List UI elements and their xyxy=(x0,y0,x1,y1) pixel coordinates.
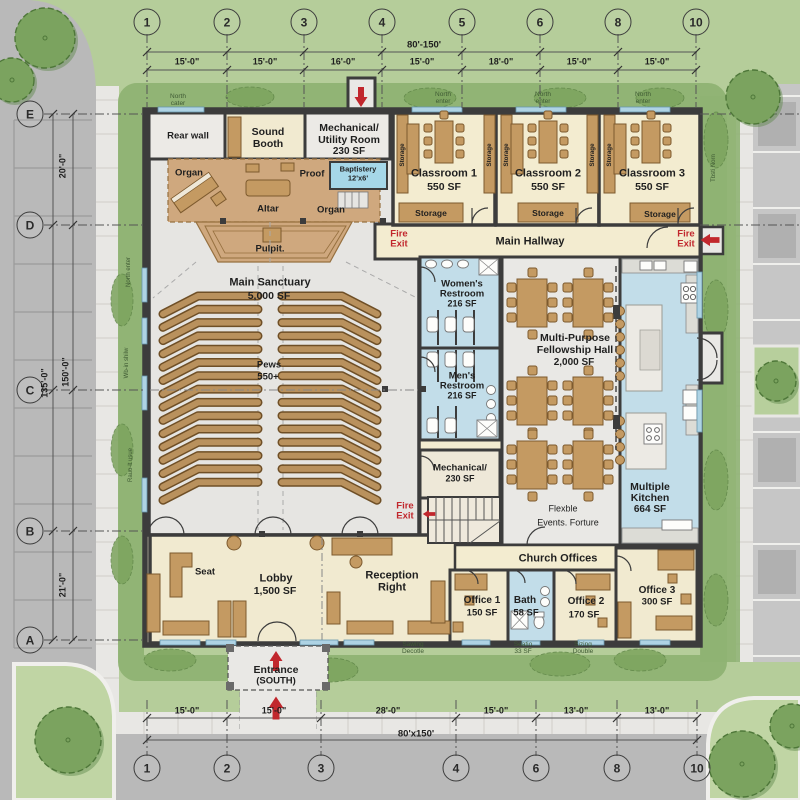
edge-label: North enter xyxy=(126,257,132,287)
storage-label: Storage xyxy=(504,143,510,166)
label-pews: Pews xyxy=(257,360,281,370)
edge-label: Rauo-lt usue xyxy=(128,448,134,482)
label-bath: Bath xyxy=(514,596,536,606)
label-pews-2: 550+ xyxy=(257,372,278,382)
label-kitchen-sf: 664 SF xyxy=(634,505,666,515)
north-label: enter xyxy=(436,99,451,106)
storage-label: Storage xyxy=(532,209,564,218)
grid-bubble-row-D: D xyxy=(17,212,44,239)
dim-label-top: 15'-0" xyxy=(253,58,277,67)
label-reception: Reception xyxy=(365,571,418,582)
dim-label-top: 16'-0" xyxy=(331,58,355,67)
grid-bubble-bottom-3: 3 xyxy=(308,755,335,782)
edge-label: Tbsti Norn xyxy=(711,154,717,182)
label-baptistery-2: 12'x6' xyxy=(348,174,368,182)
label-rear-wall: Rear wall xyxy=(167,131,209,141)
storage-label: Storage xyxy=(590,143,596,166)
label-womens-sf: 216 SF xyxy=(447,300,476,309)
label-seat: Seat xyxy=(195,567,215,577)
label-classroom-2: Classroom 2 xyxy=(515,169,581,180)
label-church-offices: Church Offices xyxy=(519,554,598,565)
pulpit xyxy=(263,228,281,242)
label-lobby-sf: 1,500 SF xyxy=(254,586,297,597)
dim-overall-top: 80'-150' xyxy=(407,40,441,50)
label-office-3-sf: 300 SF xyxy=(642,597,673,607)
label-proof: Proof xyxy=(300,169,325,179)
label-office-3: Office 3 xyxy=(639,586,676,596)
site-note: 33 SF xyxy=(514,649,531,656)
grid-bubble-top-3: 3 xyxy=(291,9,318,36)
label-kitchen-2: Kitchen xyxy=(631,493,670,504)
north-label: cater xyxy=(171,101,185,108)
label-main-hallway: Main Hallway xyxy=(495,237,564,248)
label-office-2: Office 2 xyxy=(568,597,605,607)
label-mens-sf: 216 SF xyxy=(447,392,476,401)
label-reception-2: Right xyxy=(378,583,406,594)
grid-bubble-top-10: 10 xyxy=(683,9,710,36)
dim-label-top: 15'-0" xyxy=(645,58,669,67)
label-office-2-sf: 170 SF xyxy=(569,610,600,620)
label-entrance-2: (SOUTH) xyxy=(256,676,296,686)
site-note: Decotle xyxy=(402,649,424,656)
label-classroom-1: Classroom 1 xyxy=(411,169,477,180)
floor-plan-page: Rear wall Sound Booth Mechanical/ Utilit… xyxy=(0,0,800,800)
label-baptistery: Baptistery xyxy=(340,165,377,173)
dim-label-left: 150'-0" xyxy=(62,357,71,386)
label-office-1-sf: 150 SF xyxy=(467,608,498,618)
storage-label: Storage xyxy=(644,210,676,219)
label-classroom-1-sf: 550 SF xyxy=(427,182,461,193)
label-sanctuary: Main Sanctuary xyxy=(229,278,310,289)
label-fellowship-2: Fellowship Hall xyxy=(537,345,613,356)
label-entrance: Entrance xyxy=(254,665,299,676)
label-sound-booth-2: Booth xyxy=(253,139,283,150)
grid-bubble-top-1: 1 xyxy=(134,9,161,36)
label-mech-utility: Mechanical/ xyxy=(319,123,379,134)
grid-bubble-bottom-6: 6 xyxy=(523,755,550,782)
grid-bubble-top-6: 6 xyxy=(527,9,554,36)
label-bath-sf: 58 SF xyxy=(513,608,538,618)
label-fellowship: Multi-Purpose xyxy=(540,333,610,344)
label-organ-left: Organ xyxy=(175,168,203,178)
site-note: Double xyxy=(573,649,594,656)
grid-bubble-top-2: 2 xyxy=(214,9,241,36)
label-mech-utility-2: Utility Room xyxy=(318,135,380,146)
grid-bubble-row-E: E xyxy=(17,101,44,128)
dim-overall-bottom: 80'x150' xyxy=(398,729,434,739)
grid-bubble-top-8: 8 xyxy=(605,9,632,36)
dim-label-top: 15'-0" xyxy=(175,58,199,67)
fire-exit-label: Exit xyxy=(677,239,694,249)
grid-bubble-row-B: B xyxy=(17,518,44,545)
dim-label-top: 18'-0" xyxy=(489,58,513,67)
fire-exit-label: Exit xyxy=(390,239,407,249)
label-flexible: Flexble xyxy=(548,505,577,514)
dim-label-left: 135'-0" xyxy=(41,368,50,397)
dim-label-top: 15'-0" xyxy=(410,58,434,67)
grid-bubble-top-4: 4 xyxy=(369,9,396,36)
grid-bubble-row-A: A xyxy=(17,627,44,654)
grid-bubble-top-5: 5 xyxy=(449,9,476,36)
dim-label-bottom: 13'-0" xyxy=(564,707,588,716)
label-womens-2: Restroom xyxy=(440,289,484,299)
grid-bubble-bottom-1: 1 xyxy=(134,755,161,782)
storage-label: Storage xyxy=(400,143,406,166)
dim-label-bottom: 15'-0" xyxy=(262,707,286,716)
label-office-1: Office 1 xyxy=(464,596,501,606)
fire-exit-label: Exit xyxy=(396,511,413,521)
dim-label-left: 20'-0" xyxy=(59,154,68,178)
label-classroom-3: Classroom 3 xyxy=(619,169,685,180)
edge-label: Wb-in shilw xyxy=(124,348,130,379)
label-sound-booth: Sound xyxy=(252,127,285,138)
label-fellowship-sf: 2,000 SF xyxy=(554,358,595,368)
label-events: Events. Forture xyxy=(537,519,599,528)
dim-label-left: 21'-0" xyxy=(59,573,68,597)
label-lobby: Lobby xyxy=(260,574,293,585)
north-label: enter xyxy=(636,99,651,106)
dim-label-bottom: 15'-0" xyxy=(175,707,199,716)
label-kitchen: Multiple xyxy=(630,482,670,493)
grid-bubble-bottom-4: 4 xyxy=(443,755,470,782)
dim-label-bottom: 15'-0" xyxy=(484,707,508,716)
label-classroom-2-sf: 550 SF xyxy=(531,182,565,193)
label-classroom-3-sf: 550 SF xyxy=(635,182,669,193)
altar-table xyxy=(246,180,290,196)
label-altar: Altar xyxy=(257,204,279,214)
label-organ-right: Organ xyxy=(317,205,345,215)
grid-bubble-bottom-8: 8 xyxy=(604,755,631,782)
north-label: enter xyxy=(536,99,551,106)
label-mens-2: Restroom xyxy=(440,381,484,391)
label-pulpit: Pulpit. xyxy=(255,244,284,254)
grid-bubble-bottom-2: 2 xyxy=(214,755,241,782)
storage-label: Storage xyxy=(487,143,493,166)
label-sanctuary-sf: 5,000 SF xyxy=(248,291,291,302)
dim-label-bottom: 28'-0" xyxy=(376,707,400,716)
label-mech-utility-sf: 230 SF xyxy=(333,147,365,157)
storage-label: Storage xyxy=(607,143,613,166)
label-mechanical-2: Mechanical/ xyxy=(433,463,487,473)
dim-label-bottom: 13'-0" xyxy=(645,707,669,716)
grid-bubble-bottom-10: 10 xyxy=(684,755,711,782)
storage-label: Storage xyxy=(415,209,447,218)
dim-label-top: 15'-0" xyxy=(567,58,591,67)
label-mechanical-2-sf: 230 SF xyxy=(445,475,474,484)
site-plan-drawing xyxy=(0,0,800,800)
stairs xyxy=(428,497,500,543)
